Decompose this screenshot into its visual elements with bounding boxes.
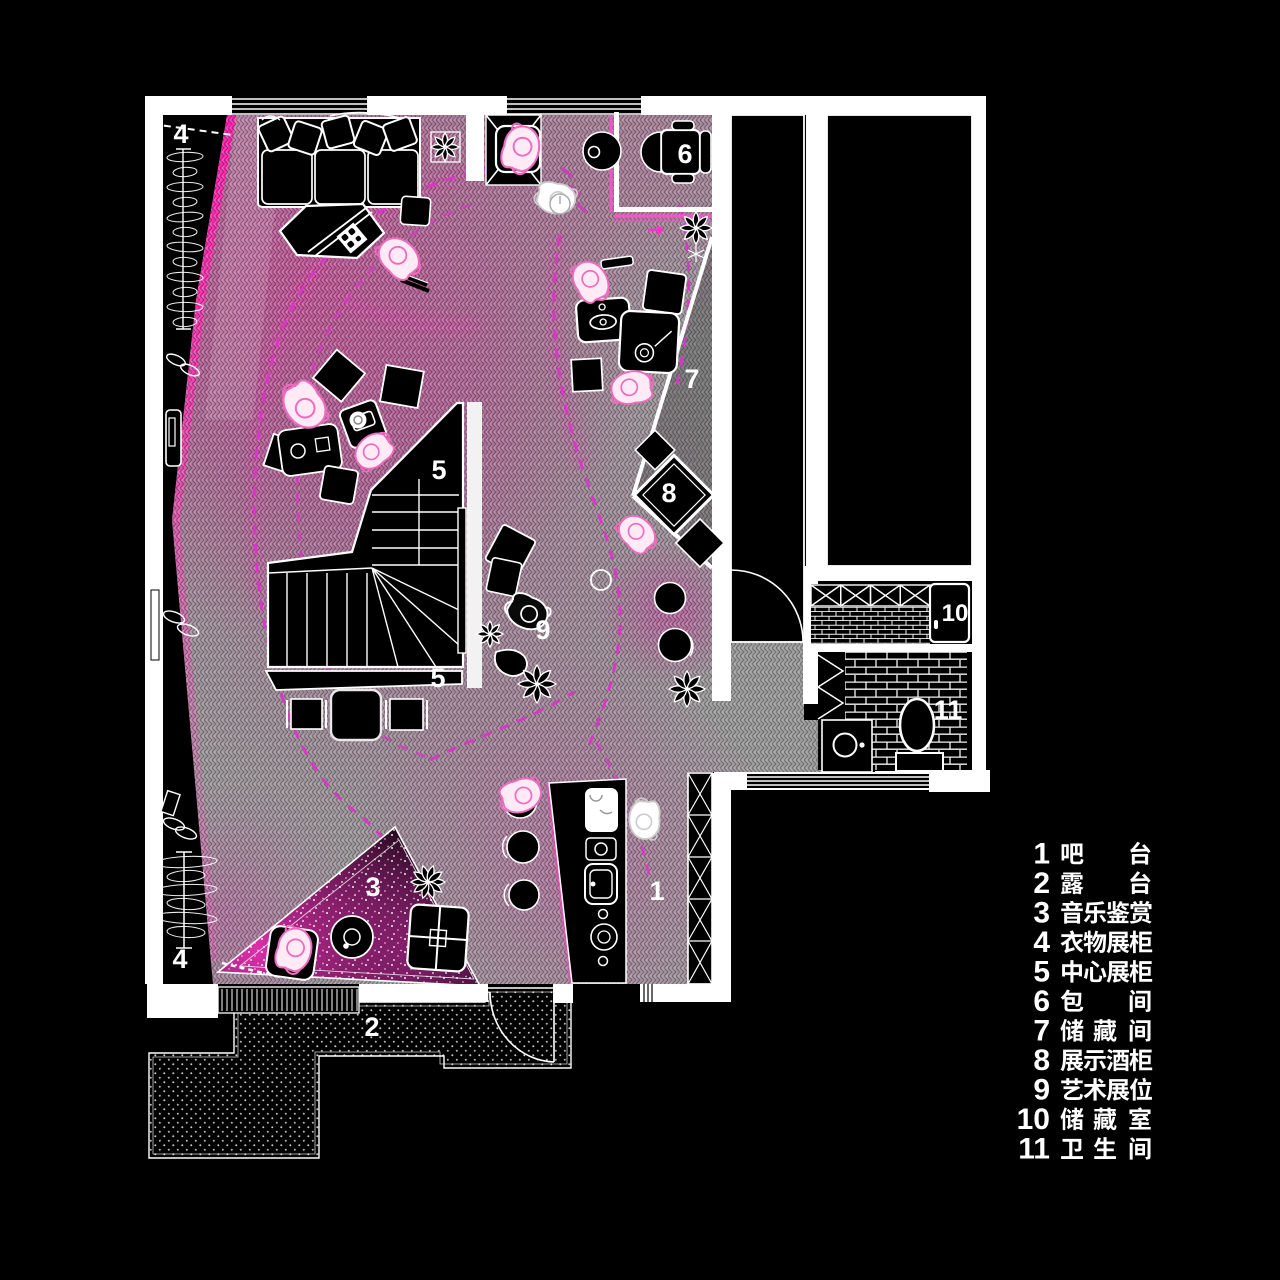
svg-text:4: 4 — [173, 119, 188, 149]
svg-text:4: 4 — [172, 944, 187, 974]
svg-text:11: 11 — [934, 695, 963, 725]
svg-text:3: 3 — [365, 872, 380, 902]
svg-text:8: 8 — [1033, 1044, 1050, 1077]
svg-text:5: 5 — [1033, 956, 1050, 989]
svg-text:1: 1 — [649, 876, 664, 906]
svg-text:8: 8 — [661, 478, 676, 508]
svg-text:3: 3 — [1033, 897, 1050, 930]
svg-text:9: 9 — [1033, 1074, 1050, 1107]
svg-text:6: 6 — [677, 139, 692, 169]
svg-text:10: 10 — [942, 600, 969, 627]
svg-text:7: 7 — [684, 364, 699, 394]
svg-text:9: 9 — [535, 615, 550, 645]
svg-text:7: 7 — [1033, 1015, 1050, 1048]
svg-text:6: 6 — [1033, 985, 1050, 1018]
svg-text:11: 11 — [1018, 1133, 1050, 1166]
svg-text:2: 2 — [364, 1012, 379, 1042]
svg-text:2: 2 — [1033, 867, 1050, 900]
svg-text:1: 1 — [1033, 838, 1050, 871]
svg-text:5: 5 — [430, 663, 445, 693]
svg-text:10: 10 — [1017, 1103, 1050, 1136]
svg-text:4: 4 — [1033, 926, 1050, 959]
svg-text:5: 5 — [431, 455, 446, 485]
